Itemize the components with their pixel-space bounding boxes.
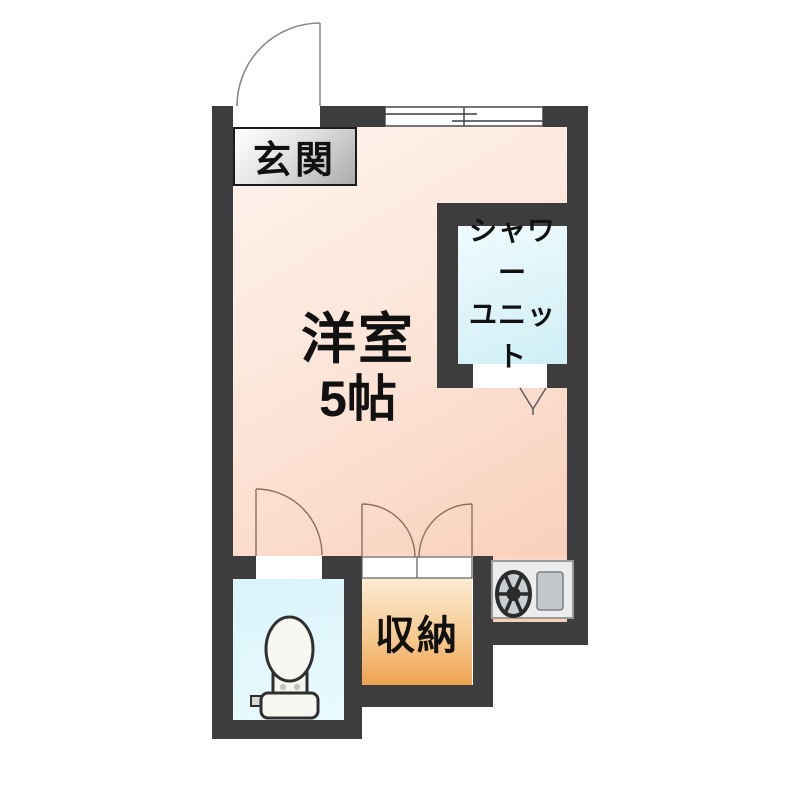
storage-label: 収納	[362, 579, 472, 685]
wall-kitchen-bottom	[473, 622, 588, 645]
genkan-label-text: 玄関	[253, 129, 337, 184]
wall-top-mid	[320, 106, 385, 127]
shower-label-line1: シャワー	[458, 210, 567, 294]
main-room-name: 洋室	[301, 309, 415, 371]
wall-toilet-right	[344, 556, 362, 739]
storage-label-text: 収納	[375, 603, 459, 661]
wall-toilet-bottom	[212, 720, 362, 739]
wall-right	[567, 106, 588, 645]
wall-bottom-a	[233, 556, 256, 579]
toilet-floor	[233, 579, 344, 720]
floor-plan: 玄関 洋室 5帖 シャワー ユニット 収納	[0, 0, 800, 800]
wall-storage-bottom	[344, 685, 493, 707]
kitchen-floor	[493, 556, 567, 622]
sliding-window-icon	[385, 107, 543, 126]
main-room-label: 洋室 5帖	[238, 303, 478, 433]
genkan-label: 玄関	[233, 127, 357, 186]
shower-unit-label: シャワー ユニット	[458, 228, 567, 360]
entrance-door-swing-icon	[237, 23, 320, 106]
wall-left	[212, 106, 233, 739]
main-room-size: 5帖	[319, 371, 397, 427]
shower-label-line2: ユニット	[458, 294, 567, 378]
